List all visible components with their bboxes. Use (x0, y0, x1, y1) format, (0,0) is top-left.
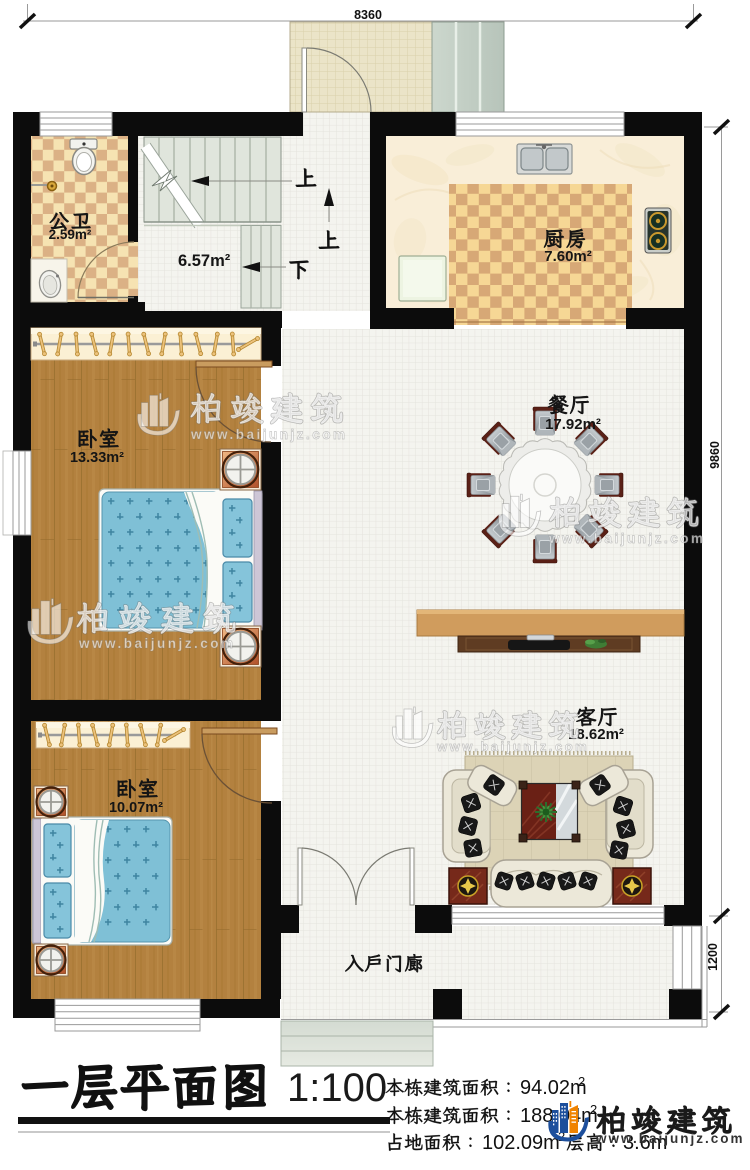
svg-text:2.59m²: 2.59m² (49, 227, 92, 242)
svg-text:8360: 8360 (354, 8, 382, 22)
svg-text:www.baijunjz.com: www.baijunjz.com (78, 636, 236, 651)
svg-text:13.33m²: 13.33m² (70, 450, 124, 466)
svg-text:www.baijunjz.com: www.baijunjz.com (595, 1131, 745, 1146)
svg-text:1200: 1200 (706, 943, 720, 971)
svg-text:9860: 9860 (708, 441, 722, 469)
svg-text:6.57m²: 6.57m² (178, 252, 231, 270)
svg-text:7.60m²: 7.60m² (544, 248, 592, 265)
svg-text:17.92m²: 17.92m² (545, 416, 601, 433)
svg-text:2: 2 (578, 1074, 585, 1089)
svg-text:www.baijunjz.com: www.baijunjz.com (548, 531, 706, 546)
svg-text:www.baijunjz.com: www.baijunjz.com (190, 427, 348, 442)
svg-text:1:100: 1:100 (287, 1066, 387, 1110)
svg-text:94.02m: 94.02m (520, 1077, 587, 1099)
svg-text:2: 2 (590, 1102, 597, 1117)
svg-text:102.09m: 102.09m (482, 1132, 560, 1154)
svg-text:10.07m²: 10.07m² (109, 800, 163, 816)
svg-text:www.baijunjz.com: www.baijunjz.com (436, 739, 589, 754)
